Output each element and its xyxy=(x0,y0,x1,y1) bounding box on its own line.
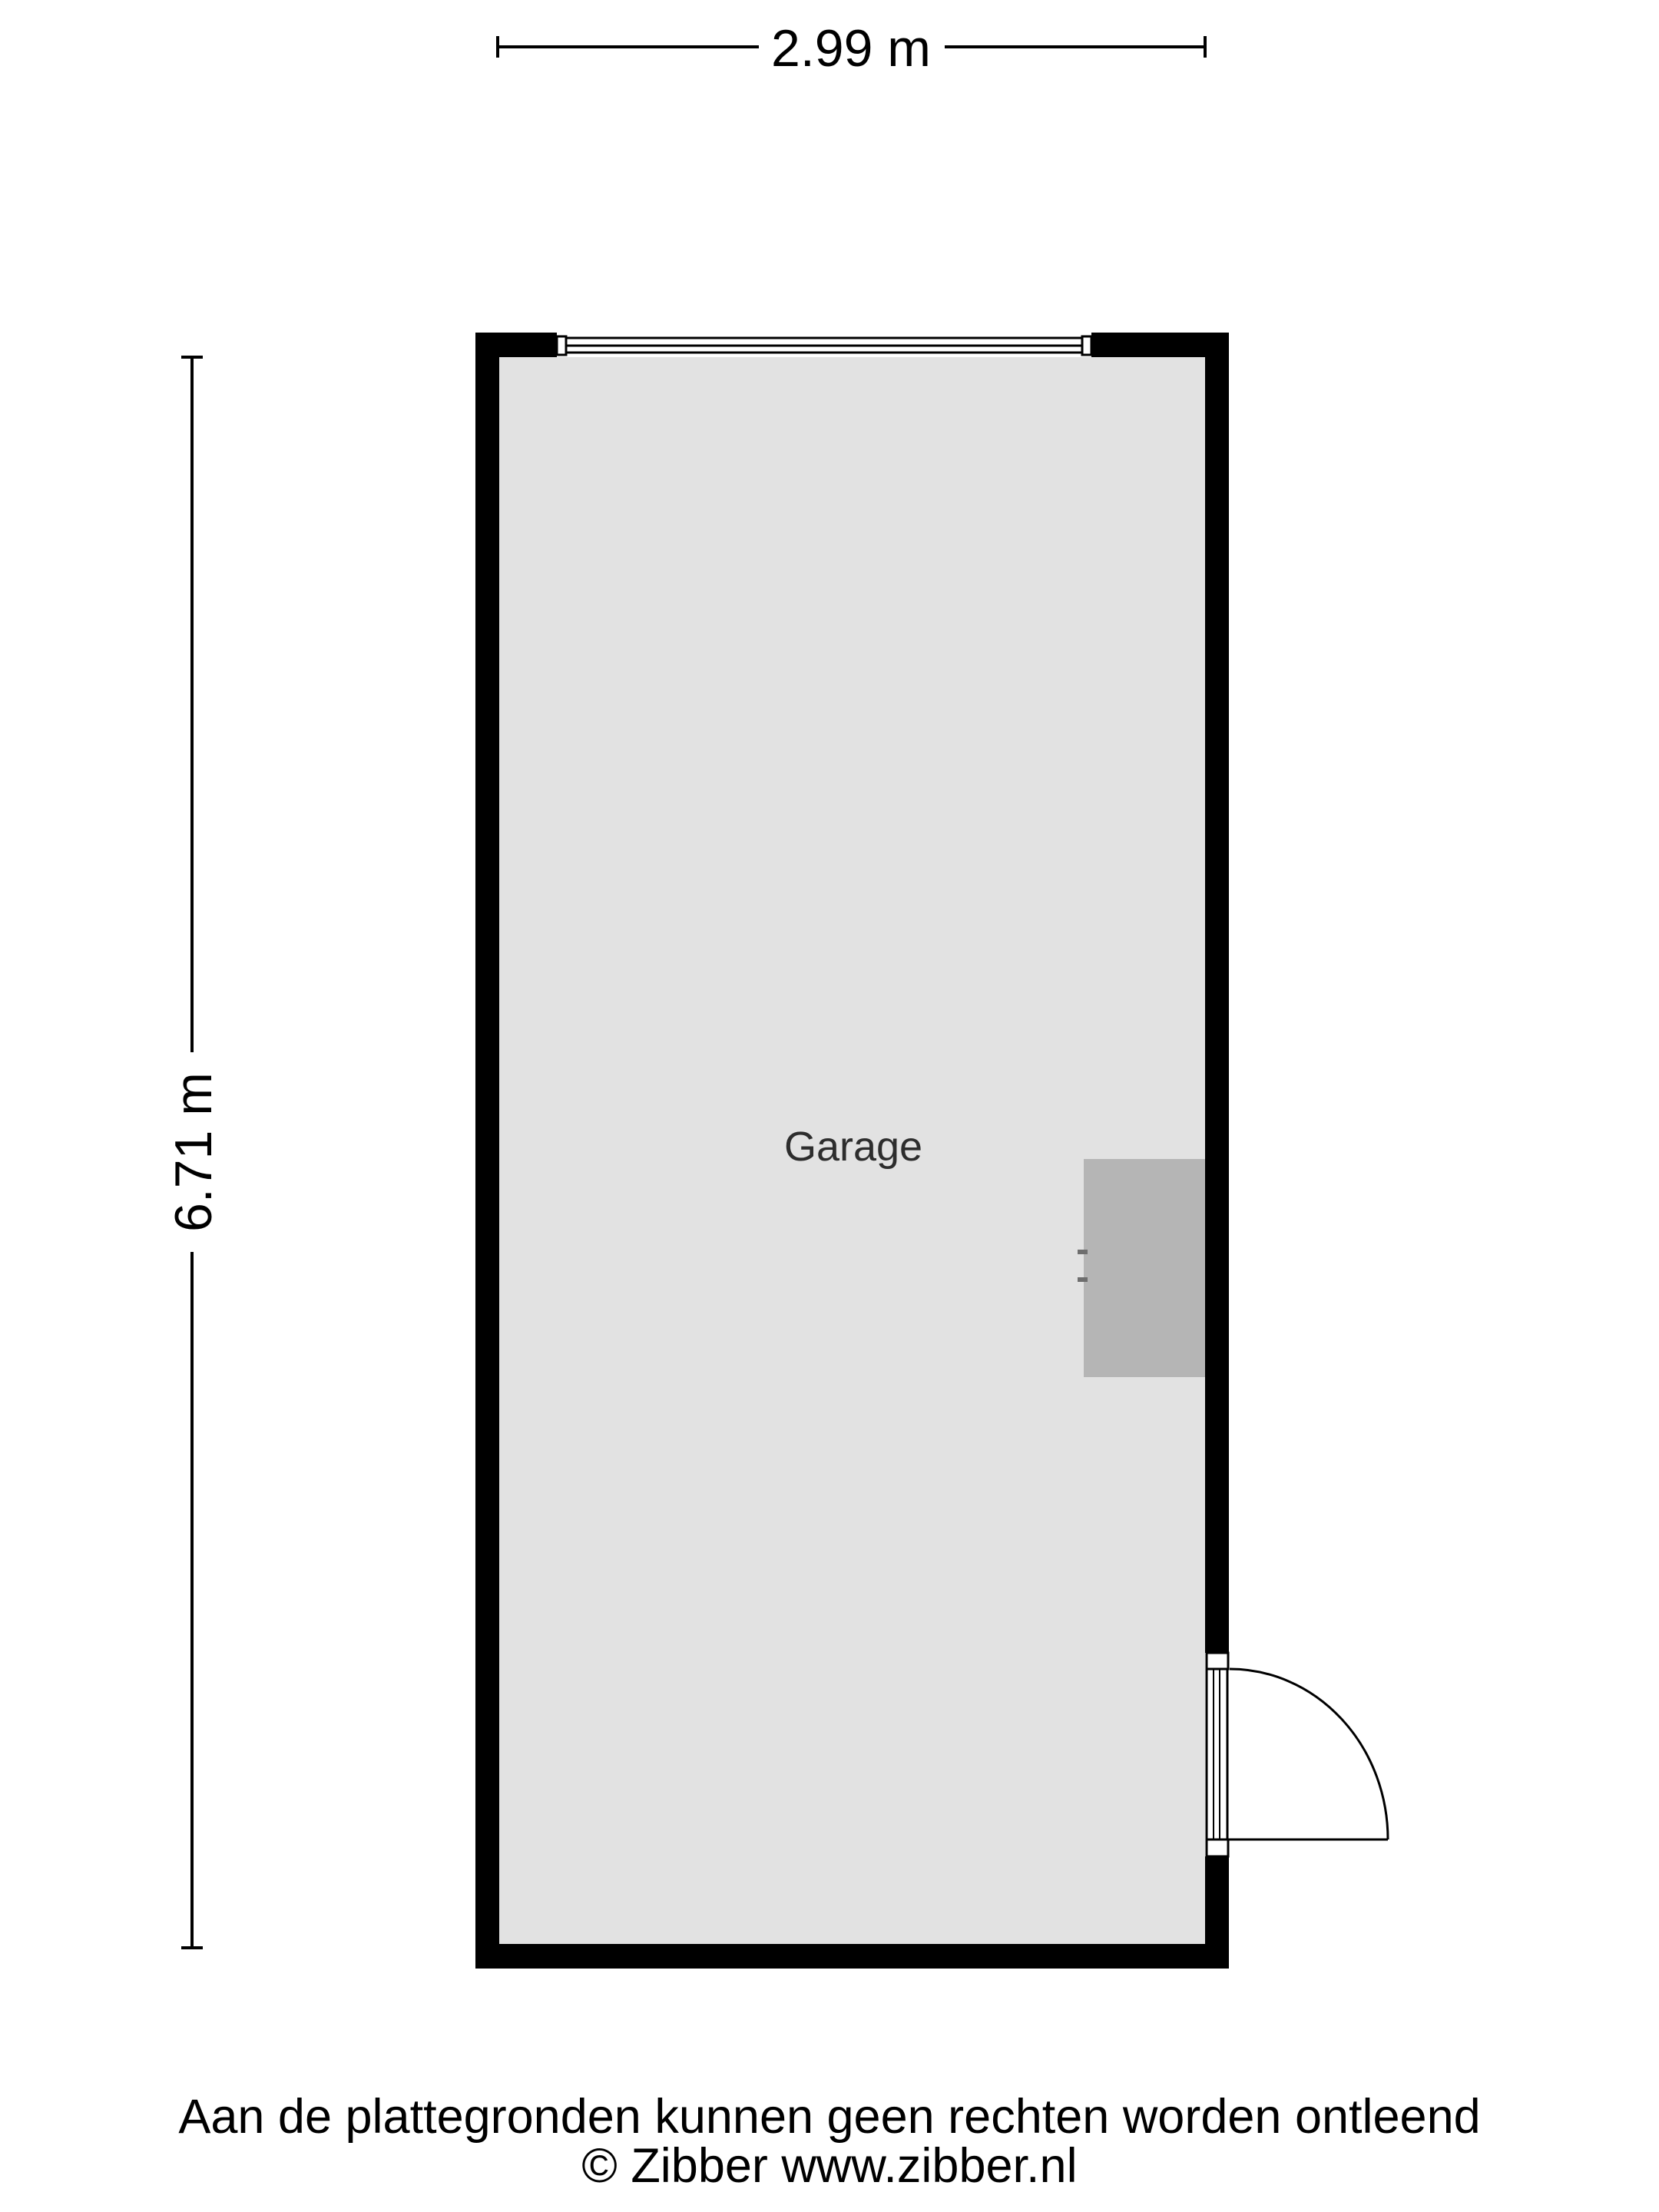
wall-right-upper xyxy=(1205,333,1229,1653)
window xyxy=(557,336,1091,355)
door xyxy=(1207,1653,1388,1856)
fixture-body xyxy=(1084,1159,1205,1377)
door-panel xyxy=(1207,1669,1227,1839)
wall-top-left-block xyxy=(475,333,557,357)
footer-disclaimer: Aan de plattegronden kunnen geen rechten… xyxy=(0,2092,1659,2141)
window-frame-right xyxy=(1082,336,1091,355)
dimension-height-label: 6.71 m xyxy=(167,1037,220,1267)
fixture xyxy=(1078,1159,1205,1377)
fixture-mark-top xyxy=(1078,1250,1088,1254)
floorplan-drawing xyxy=(0,0,1659,2212)
door-frame-bottom xyxy=(1207,1839,1228,1856)
door-swing-arc xyxy=(1230,1669,1388,1839)
room-label-garage: Garage xyxy=(700,1123,1007,1171)
window-frame-left xyxy=(557,336,566,355)
door-frame-top xyxy=(1207,1653,1228,1669)
floorplan-page: 2.99 m 6.71 m Garage Aan de plattegronde… xyxy=(0,0,1659,2212)
wall-left xyxy=(475,333,499,1969)
wall-bottom xyxy=(475,1944,1229,1969)
fixture-mark-bottom xyxy=(1078,1277,1088,1282)
dimension-width-label: 2.99 m xyxy=(736,18,966,78)
footer-copyright: © Zibber www.zibber.nl xyxy=(0,2141,1659,2190)
footer: Aan de plattegronden kunnen geen rechten… xyxy=(0,2092,1659,2190)
